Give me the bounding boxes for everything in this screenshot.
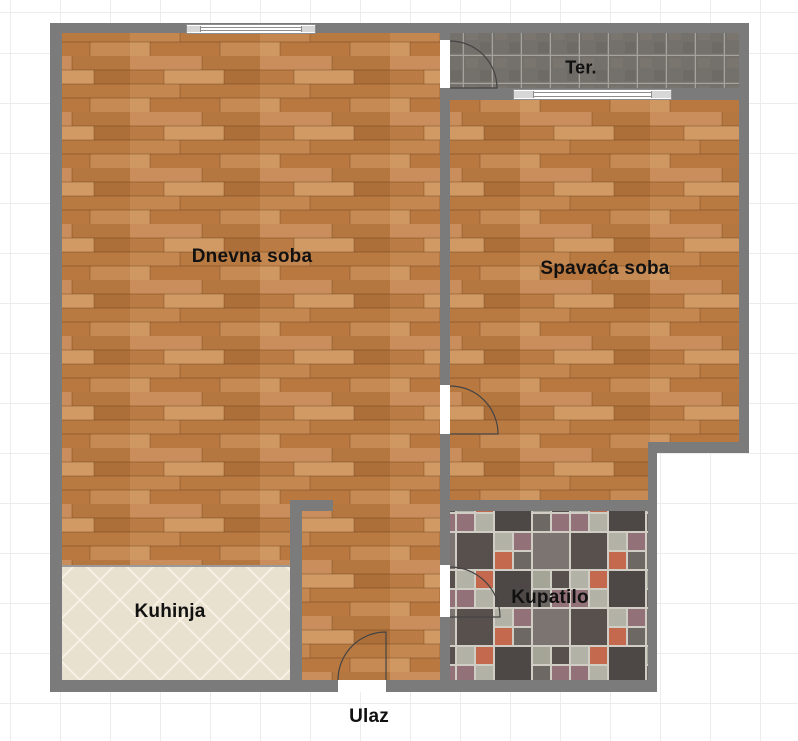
living-room-window [186,24,316,34]
entrance-label: Ulaz [349,706,389,728]
wall-divider-upper [440,88,450,385]
wall-left [50,23,62,692]
bedroom-window [513,89,672,100]
wall-kitchen-stub [290,500,333,511]
window-sill-right [301,26,315,32]
kitchen-label: Kuhinja [134,601,205,623]
wall-kitchen-right [290,500,302,680]
kitchen-boundary-line [62,565,290,567]
terrace-label: Ter. [565,58,596,79]
kitchen-floor [62,567,290,680]
bathroom-label: Kupatilo [511,587,589,609]
floor-textures [0,0,798,741]
wall-divider-lower [440,617,450,692]
wall-divider-top-stub [440,33,450,40]
living-room-label: Dnevna soba [192,246,312,268]
bedroom-door-opening [440,385,450,434]
window-sill-left [514,91,534,98]
window-sill-left [187,26,201,32]
wall-right-lower [648,442,657,692]
terrace-door-opening [440,40,450,88]
bedroom-floor-lower [450,442,648,500]
floorplan-canvas: Dnevna soba Spavaća soba Ter. Kuhinja Ku… [0,0,798,741]
window-glass [200,27,302,31]
window-sill-right [651,91,671,98]
entrance-door-opening [338,680,386,692]
wall-bedroom-bottom [440,500,657,511]
wall-right-jog [648,442,749,453]
bathroom-door-opening [440,565,450,617]
window-glass [533,92,652,97]
wall-divider-middle [440,433,450,565]
bedroom-label: Spavaća soba [540,258,669,280]
wall-top [50,23,749,33]
